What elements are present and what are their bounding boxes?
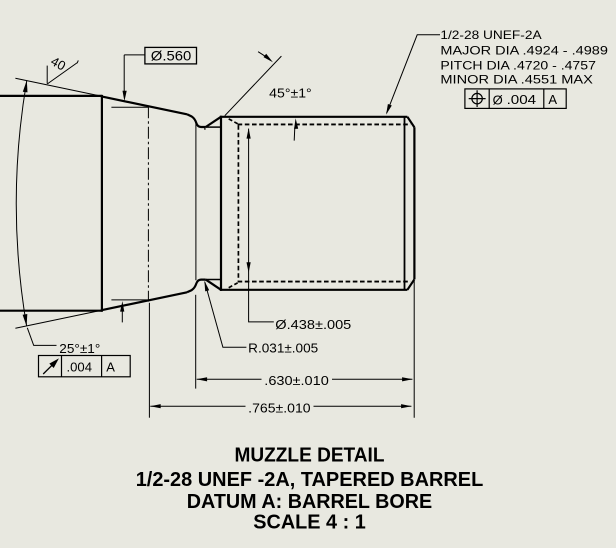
svg-text:MINOR DIA .4551 MAX: MINOR DIA .4551 MAX [440, 73, 593, 87]
svg-text:Ø.560: Ø.560 [151, 47, 192, 63]
svg-text:R.031±.005: R.031±.005 [248, 340, 318, 355]
svg-text:.630±.010: .630±.010 [264, 373, 329, 388]
svg-text:1/2-28 UNEF-2A: 1/2-28 UNEF-2A [440, 28, 541, 42]
svg-text:45°±1°: 45°±1° [269, 85, 312, 100]
svg-text:.004: .004 [507, 92, 536, 107]
svg-text:MAJOR DIA .4924 - .4989: MAJOR DIA .4924 - .4989 [440, 43, 608, 57]
svg-text:SCALE 4 : 1: SCALE 4 : 1 [253, 512, 366, 534]
svg-text:DATUM A: BARREL BORE: DATUM A: BARREL BORE [187, 491, 432, 513]
svg-text:.004: .004 [67, 360, 93, 375]
svg-text:PITCH DIA .4720 - .4757: PITCH DIA .4720 - .4757 [440, 58, 596, 72]
svg-text:A: A [106, 359, 115, 374]
svg-text:Ø.438±.005: Ø.438±.005 [275, 317, 351, 332]
svg-text:A: A [548, 92, 557, 107]
svg-text:.765±.010: .765±.010 [248, 401, 310, 416]
svg-text:25°±1°: 25°±1° [59, 341, 100, 356]
svg-text:1/2-28 UNEF -2A, TAPERED BARRE: 1/2-28 UNEF -2A, TAPERED BARREL [136, 469, 484, 491]
svg-text:MUZZLE DETAIL: MUZZLE DETAIL [235, 445, 385, 467]
svg-text:40: 40 [48, 53, 68, 73]
svg-text:Ø: Ø [493, 92, 503, 107]
